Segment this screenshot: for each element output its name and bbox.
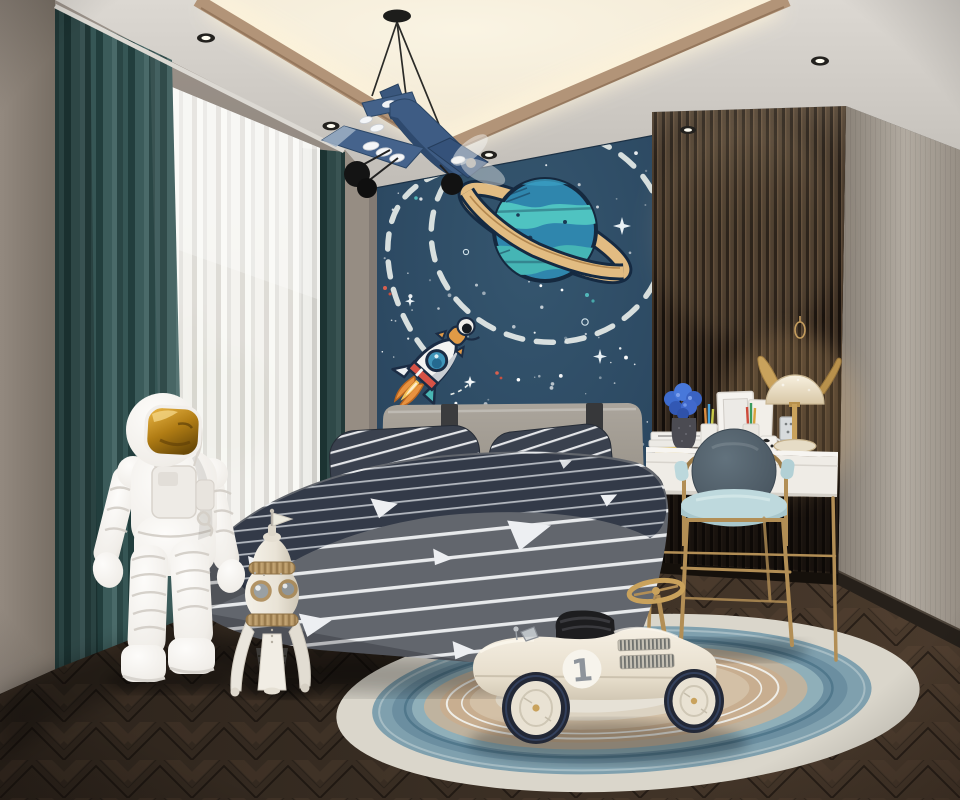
bedroom-scene: 1 <box>0 0 960 800</box>
bedroom-render: 1 <box>0 0 960 800</box>
vignette-overlay <box>0 0 960 800</box>
